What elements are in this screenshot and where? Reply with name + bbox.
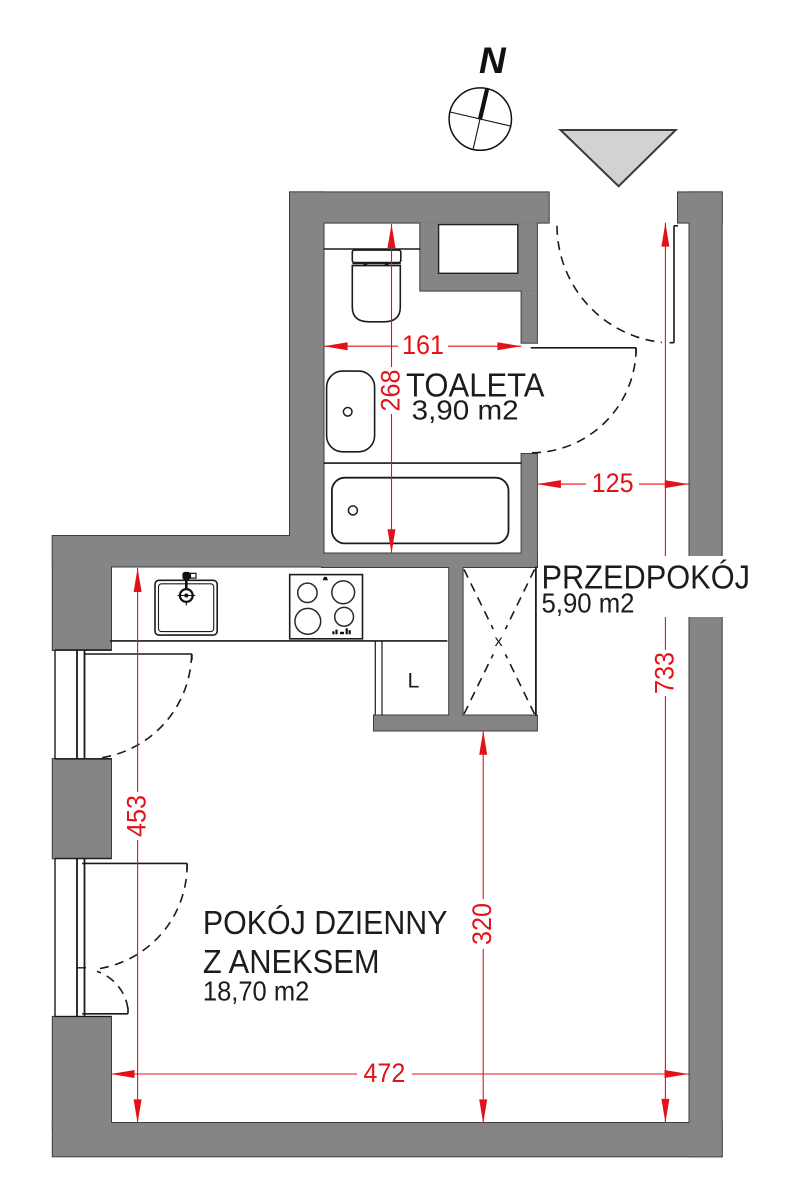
svg-text:472: 472 <box>363 1058 405 1088</box>
svg-text:733: 733 <box>649 652 679 694</box>
svg-text:18,70 m2: 18,70 m2 <box>203 975 309 1006</box>
svg-text:125: 125 <box>592 468 634 498</box>
svg-text:L: L <box>408 669 420 693</box>
svg-text:5,90 m2: 5,90 m2 <box>542 588 635 619</box>
svg-text:Z ANEKSEM: Z ANEKSEM <box>203 943 380 980</box>
svg-text:268: 268 <box>376 370 406 412</box>
svg-text:320: 320 <box>467 903 497 945</box>
svg-text:453: 453 <box>122 795 152 837</box>
svg-text:x: x <box>495 633 503 650</box>
svg-text:N: N <box>479 40 507 81</box>
svg-text:3,90 m2: 3,90 m2 <box>412 395 519 426</box>
svg-text:161: 161 <box>402 330 444 360</box>
svg-text:POKÓJ DZIENNY: POKÓJ DZIENNY <box>203 904 448 941</box>
